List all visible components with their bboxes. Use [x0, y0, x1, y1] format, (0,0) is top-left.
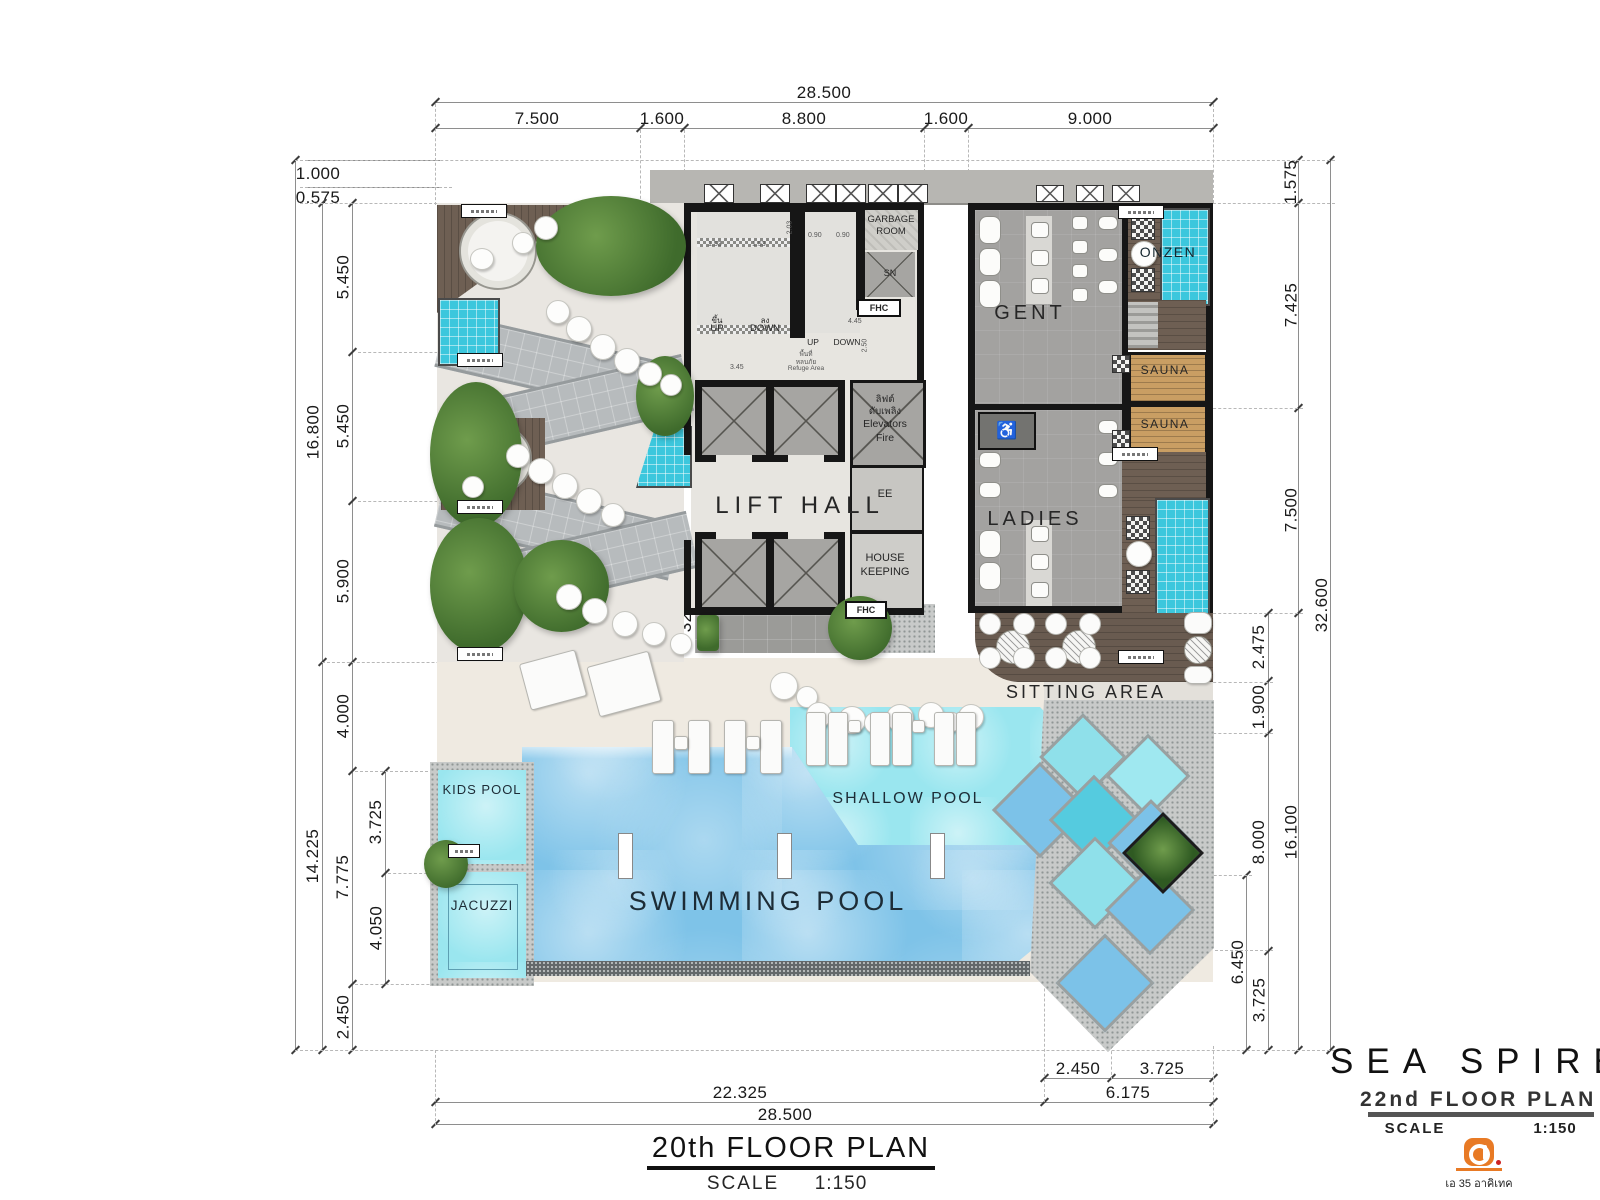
wall-tag — [448, 844, 480, 858]
urinal — [1072, 216, 1088, 230]
louver-vent-icon — [836, 184, 866, 203]
louver-vent-icon — [760, 184, 790, 203]
dim-bottom-overall: 28.500 — [735, 1105, 835, 1125]
dim-left-5450a: 5.450 — [334, 203, 352, 352]
side-table — [674, 736, 688, 750]
toilet — [1098, 484, 1118, 498]
titleblock-bar — [1368, 1112, 1594, 1117]
dim-top-seg-4: 1.600 — [896, 109, 996, 129]
titleblock-scale-label: SCALE — [1375, 1120, 1455, 1137]
sauna-1-label: SAUNA — [1128, 363, 1202, 377]
dim-right-2475: 2.475 — [1250, 613, 1268, 681]
louver-vent-icon — [806, 184, 836, 203]
pool-sign-board — [777, 833, 792, 879]
dim-right-8000: 8.000 — [1250, 733, 1268, 951]
elevator-car — [774, 539, 838, 607]
logo-caption: เอ 35 อาคิเทค — [1429, 1174, 1529, 1192]
shallow-pool-label: SHALLOW POOL — [828, 790, 988, 808]
chair — [979, 613, 1001, 635]
side-table — [848, 720, 861, 733]
wall-tag — [1118, 650, 1164, 664]
stair-dim: 3.45 — [730, 364, 744, 371]
floor-plan-canvas: 28.500 7.500 1.600 8.800 1.600 9.000 1.0… — [0, 0, 1600, 1200]
stair2-down: DOWN — [828, 337, 866, 347]
stair-dim: 2.03 — [786, 221, 793, 235]
dim-right-1900: 1.900 — [1250, 681, 1268, 733]
dim-right-3725: 3.725 — [1250, 951, 1268, 1050]
scale-label: SCALE — [693, 1173, 793, 1195]
accessible-wc: ♿ — [978, 412, 1036, 450]
wall-tag — [1118, 205, 1164, 219]
spa-mat — [1112, 430, 1130, 448]
chair — [1079, 647, 1101, 669]
louver-vent-icon — [1036, 185, 1064, 202]
bean-bag — [512, 232, 534, 254]
louver-vent-icon — [1076, 185, 1104, 202]
in-water-lounger — [892, 712, 912, 766]
louver-vent-icon — [704, 184, 734, 203]
stair1-down: DOWN — [745, 323, 785, 334]
chair — [1079, 613, 1101, 635]
chair — [1045, 613, 1067, 635]
bean-bag — [770, 672, 798, 700]
toilet — [979, 452, 1001, 468]
dim-right-6450: 6.450 — [1229, 874, 1247, 1050]
title-underline — [647, 1166, 935, 1170]
deck-lounger — [1184, 612, 1212, 634]
side-table — [912, 720, 925, 733]
sink — [979, 530, 1001, 558]
dim-right-7425: 7.425 — [1282, 203, 1300, 408]
garbage-room-label-2: ROOM — [862, 226, 920, 237]
stool — [1031, 278, 1049, 294]
stair-dim: 0.90 — [808, 232, 822, 239]
steps — [1128, 302, 1158, 348]
dim-left-5900: 5.900 — [334, 501, 352, 662]
urinal — [1072, 264, 1088, 278]
sn-label: SN — [865, 268, 915, 278]
urinal — [1072, 288, 1088, 302]
chair — [1045, 647, 1067, 669]
dim-right-16100: 16.100 — [1282, 614, 1300, 1051]
sink — [979, 216, 1001, 244]
housekeeping-label-2: KEEPING — [850, 566, 920, 578]
sauna-1 — [1128, 352, 1208, 404]
sauna-2-label: SAUNA — [1128, 417, 1202, 431]
dim-left-2450: 2.450 — [334, 984, 352, 1051]
round-table — [1184, 636, 1212, 664]
dim-left-7775: 7.775 — [334, 771, 352, 983]
spa-mat — [1131, 216, 1155, 240]
project-name: SEA SPIRE — [1330, 1042, 1600, 1082]
dim-bottom-6175: 6.175 — [1078, 1083, 1178, 1103]
refuge-area-en: Refuge Area — [781, 365, 831, 372]
deck-lounger — [1184, 666, 1212, 684]
spa-mat — [1131, 268, 1155, 292]
dim-top-seg-1: 7.500 — [487, 109, 587, 129]
stool — [1031, 554, 1049, 570]
chair — [979, 647, 1001, 669]
chair — [1013, 647, 1035, 669]
gent-label: GENT — [985, 302, 1075, 325]
louver-vent-icon — [1112, 185, 1140, 202]
in-water-lounger — [956, 712, 976, 766]
spa-stool — [1126, 541, 1152, 567]
drawing-title: 20th FLOOR PLAN — [641, 1132, 941, 1165]
scale-value: 1:150 — [791, 1173, 891, 1195]
kids-pool-label: KIDS POOL — [438, 782, 526, 797]
dim-right-1575: 1.575 — [1282, 160, 1300, 204]
wall-tag — [457, 353, 503, 367]
pool-sign-board — [930, 833, 945, 879]
a35-logo-icon — [1464, 1138, 1494, 1166]
spa-mat — [1126, 516, 1150, 540]
logo-registered-mark — [1496, 1160, 1501, 1165]
sun-lounger — [760, 720, 782, 774]
elevator-car — [702, 539, 766, 607]
dim-left-4050: 4.050 — [367, 873, 385, 984]
fhc-label: FHC — [870, 303, 889, 313]
wheelchair-icon: ♿ — [996, 421, 1017, 441]
dim-left-5450b: 5.450 — [334, 352, 352, 501]
dim-right-7500: 7.500 — [1282, 408, 1300, 613]
planter — [697, 615, 719, 651]
sun-lounger — [688, 720, 710, 774]
stair-dim: 4.45 — [848, 318, 862, 325]
wall-tag — [461, 204, 507, 218]
wall-tag — [457, 647, 503, 661]
louver-vent-icon — [868, 184, 898, 203]
stair-dim: 1.53 — [708, 241, 722, 248]
pool-edge-strip — [522, 961, 1030, 976]
dim-left-16800: 16.800 — [304, 203, 322, 662]
dim-left-1000: 1.000 — [288, 164, 348, 184]
toilet — [979, 482, 1001, 498]
stair-dim: 2.50 — [861, 339, 868, 353]
stair-dim: 1.53 — [752, 241, 766, 248]
lift-hall-label: LIFT HALL — [700, 492, 900, 520]
swimming-pool-label: SWIMMING POOL — [618, 886, 918, 917]
dim-top-seg-3: 8.800 — [754, 109, 854, 129]
fhc-label: FHC — [857, 605, 876, 615]
dim-top-overall: 28.500 — [774, 83, 874, 103]
spa-pool — [1155, 498, 1210, 617]
dim-top-seg-5: 9.000 — [1040, 109, 1140, 129]
toilet — [1098, 280, 1118, 294]
dim-bottom-3725: 3.725 — [1112, 1059, 1212, 1079]
in-water-lounger — [934, 712, 954, 766]
ladies-label: LADIES — [985, 508, 1085, 531]
fhc-box: FHC — [857, 299, 901, 317]
sun-lounger — [724, 720, 746, 774]
stair2-up: UP — [798, 337, 828, 347]
in-water-lounger — [806, 712, 826, 766]
elevator-car — [774, 387, 838, 455]
toilet — [1098, 248, 1118, 262]
stool — [1031, 222, 1049, 238]
housekeeping-label-1: HOUSE — [850, 552, 920, 564]
louver-vent-icon — [898, 184, 928, 203]
logo-caption-bar — [1456, 1168, 1502, 1171]
sink — [979, 248, 1001, 276]
titleblock-scale-value: 1:150 — [1520, 1120, 1590, 1137]
fire-lift-en2: Fire — [850, 432, 920, 444]
spa-mat — [1126, 570, 1150, 594]
in-water-lounger — [828, 712, 848, 766]
grid-dash — [295, 160, 1335, 161]
fire-lift-th2: ดับเพลิง — [850, 404, 920, 419]
chair — [1013, 613, 1035, 635]
sink — [979, 562, 1001, 590]
onzen-label: ONZEN — [1128, 244, 1208, 260]
planting — [536, 196, 686, 296]
jacuzzi-label: JACUZZI — [438, 898, 526, 913]
dim-left-3725: 3.725 — [367, 771, 385, 873]
pool-sign-board — [618, 833, 633, 879]
fhc-box: FHC — [845, 601, 887, 619]
stool — [1031, 250, 1049, 266]
stool — [1031, 582, 1049, 598]
urinal — [1072, 240, 1088, 254]
wall-tag — [457, 500, 503, 514]
sun-lounger — [652, 720, 674, 774]
titleblock-plan-name: 22nd FLOOR PLAN — [1360, 1088, 1590, 1112]
dim-left-14225: 14.225 — [304, 662, 322, 1050]
dim-top-seg-2: 1.600 — [612, 109, 712, 129]
side-table — [746, 736, 760, 750]
dim-line-left-outer — [295, 160, 296, 1050]
elevator-car — [702, 387, 766, 455]
stair-dim: 0.90 — [836, 232, 850, 239]
sitting-area-label: SITTING AREA — [1006, 682, 1166, 703]
wall-tag — [1112, 447, 1158, 461]
stair1-up: UP — [700, 323, 734, 334]
dim-left-4000: 4.000 — [334, 662, 352, 771]
in-water-lounger — [870, 712, 890, 766]
garbage-room-label-1: GARBAGE — [862, 214, 920, 225]
dim-right-32600: 32.600 — [1313, 160, 1331, 1050]
toilet — [1098, 216, 1118, 230]
fire-lift-en1: Elevators — [850, 418, 920, 430]
dim-bottom-22325: 22.325 — [690, 1083, 790, 1103]
